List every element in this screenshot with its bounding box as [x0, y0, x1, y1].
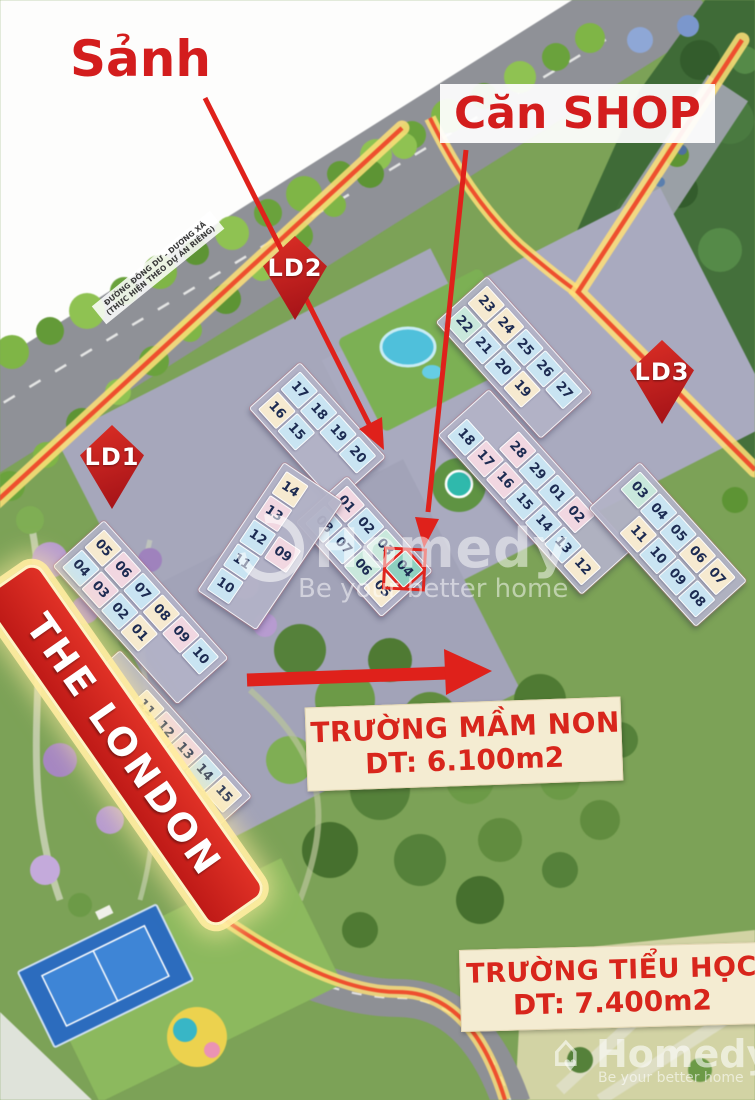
shop-annotation: Căn SHOP [440, 84, 715, 143]
site-plan-image: 0506070809100403020111121314151918171617… [0, 0, 755, 1100]
primary-school-label: TRƯỜNG TIỂU HỌC DT: 7.400m2 [459, 942, 755, 1032]
kindergarten-label: TRƯỜNG MẦM NON DT: 6.100m2 [305, 697, 624, 792]
lobby-annotation: Sảnh [70, 30, 211, 88]
buildings-layer: 0506070809100403020111121314151918171617… [0, 0, 755, 1100]
unit-tile-center-lower-04: 04 [385, 550, 423, 588]
